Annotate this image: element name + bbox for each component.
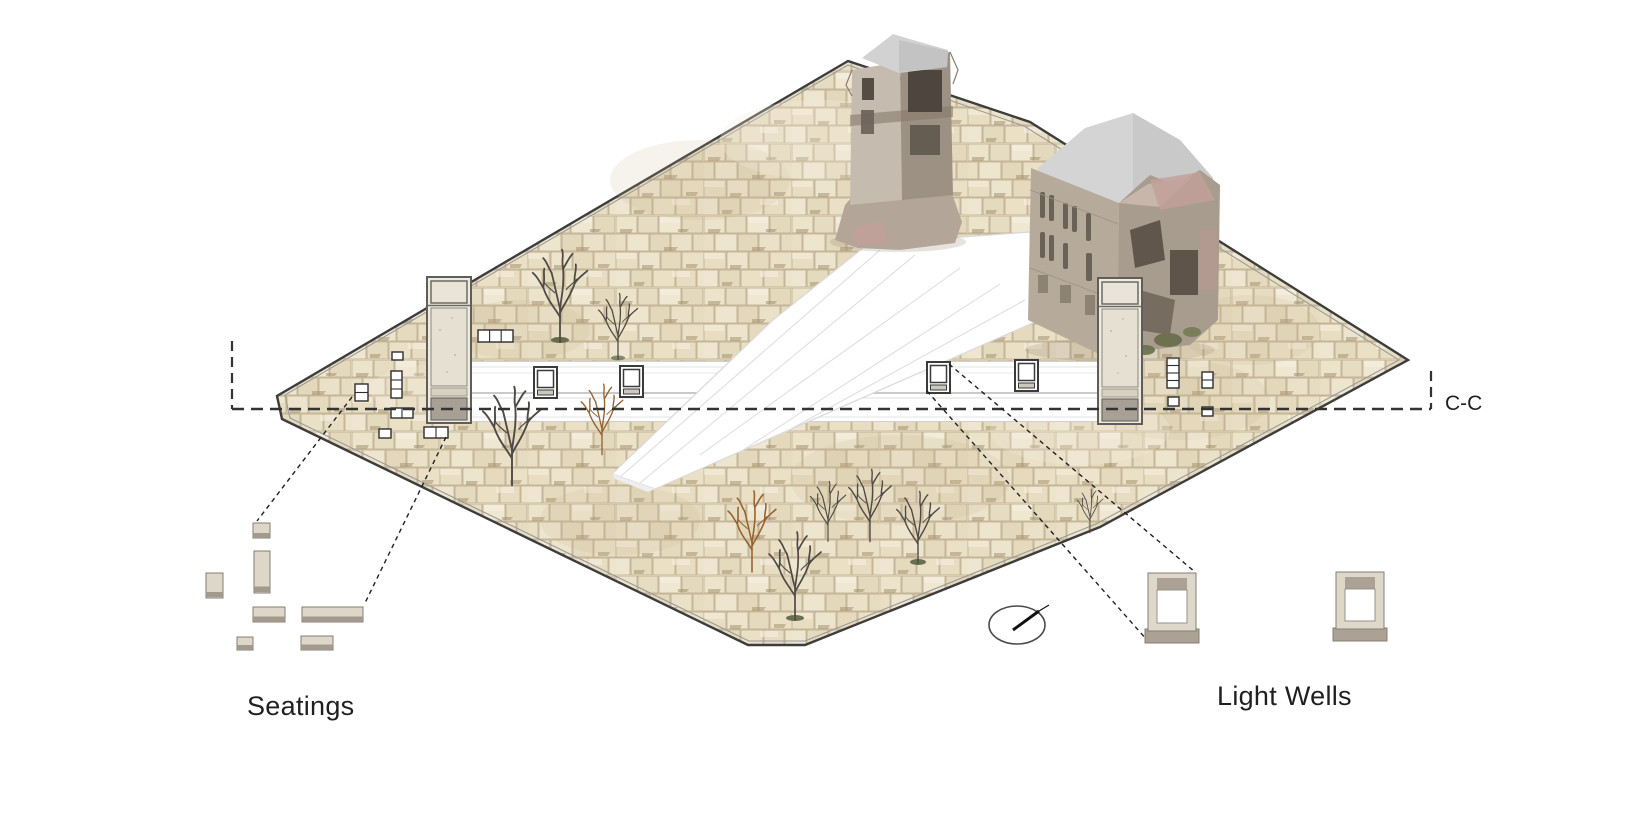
- seating-detail-block: [253, 523, 270, 538]
- left-core-tower: [427, 277, 471, 423]
- seating-detail-block: [301, 636, 333, 650]
- light-wells-label: Light Wells: [1217, 681, 1352, 711]
- seating-detail-block: [302, 607, 363, 622]
- seating-detail-block: [254, 551, 270, 593]
- architectural-diagram: Seatings Light Wells C-C: [0, 0, 1649, 816]
- light-well-detail: [1145, 573, 1199, 643]
- seating-detail-block: [253, 607, 285, 622]
- seatings-label: Seatings: [247, 691, 354, 721]
- plan-light-well: [927, 362, 950, 393]
- seating-detail-block: [237, 637, 253, 650]
- site-axonometric: Seatings Light Wells C-C: [0, 0, 1649, 816]
- section-label: C-C: [1445, 392, 1482, 415]
- right-core-tower: [1098, 278, 1142, 424]
- plan-light-well: [620, 366, 643, 397]
- north-arrow-icon: [989, 605, 1049, 644]
- light-well-detail: [1333, 572, 1387, 641]
- seatings-detail: [206, 523, 363, 650]
- plan-light-well: [534, 367, 557, 398]
- light-well-details: [1145, 572, 1387, 643]
- seating-detail-block: [206, 573, 223, 598]
- plan-light-well: [1015, 360, 1038, 391]
